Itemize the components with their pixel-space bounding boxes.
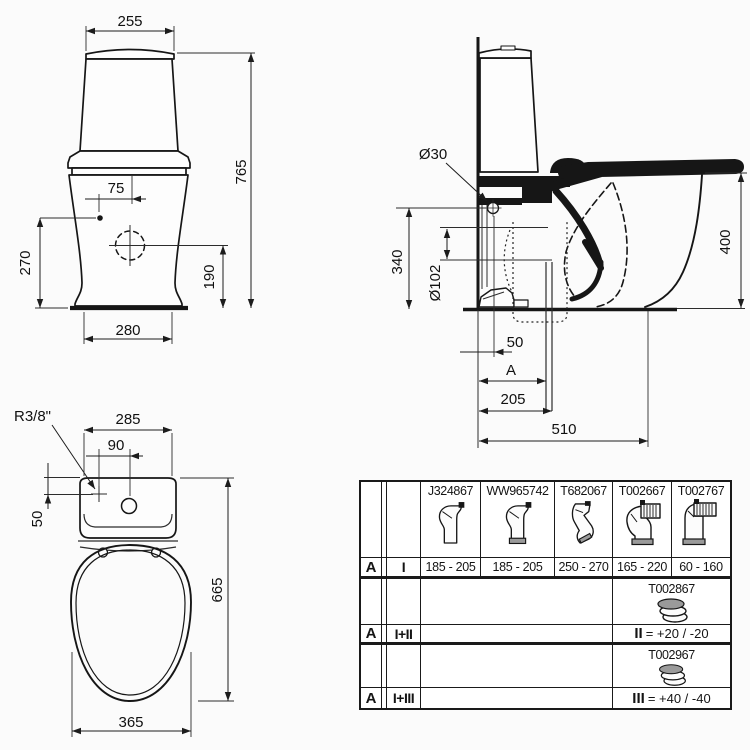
table-cell-empty [421, 625, 613, 643]
table-cell-empty [387, 482, 421, 558]
part-number: T002767 [678, 484, 725, 498]
table-header-part: T002667 [613, 482, 672, 558]
dim-label: 270 [17, 250, 34, 275]
table-cell-zone: A [361, 558, 382, 577]
dim-side-variable-a: A [479, 362, 546, 381]
dim-top-inlet-thread: R3/8" [14, 408, 95, 489]
dim-label: 90 [108, 437, 125, 454]
part-number: T002967 [648, 648, 695, 662]
dim-label: 50 [507, 334, 524, 351]
dim-label: 280 [115, 322, 140, 339]
table-cell-empty [421, 688, 613, 708]
table-cell-range: 185 - 205 [421, 558, 481, 577]
table-cell-accessory: T002967 [613, 643, 730, 688]
table-cell-range: 165 - 220 [613, 558, 672, 577]
table-header-part: J324867 [421, 482, 481, 558]
dim-side-outlet-depth: 205 [479, 391, 552, 411]
dim-top-total-length: 665 [180, 478, 234, 701]
side-view-drawing: Ø30 340 Ø102 400 50 A 205 [389, 37, 747, 448]
dim-side-total-depth: 510 [479, 311, 648, 447]
dim-label: 340 [389, 249, 406, 274]
table-cell-empty [387, 643, 421, 688]
table-cell-formula: III = +40 / -40 [613, 688, 730, 708]
s-bend-connector-sleeve-icon [498, 499, 538, 547]
connector-spec-table: J324867 WW965742 T682067 T002667 [359, 480, 732, 710]
part-number: T002667 [619, 484, 666, 498]
formula-roman-numeral: II [634, 625, 642, 642]
top-view-drawing: R3/8" 285 90 50 665 365 [14, 408, 234, 737]
dim-front-width-top: 255 [86, 13, 174, 51]
table-cell-range: 185 - 205 [481, 558, 555, 577]
dim-top-tank-width: 285 [84, 411, 172, 476]
dim-side-rim-height: 400 [705, 173, 747, 308]
part-number: J324867 [428, 484, 473, 498]
dim-label: 75 [108, 180, 125, 197]
table-header-part: WW965742 [481, 482, 555, 558]
dim-label: 285 [115, 411, 140, 428]
table-cell-config: I+III [387, 688, 421, 708]
dim-label: 190 [201, 264, 218, 289]
table-header-part: T682067 [555, 482, 613, 558]
table-cell-config: I [387, 558, 421, 577]
table-cell-empty [361, 643, 382, 688]
offset-coupler-icon [654, 597, 690, 624]
dim-side-wall-gap: 50 [460, 216, 523, 448]
table-cell-empty [421, 577, 613, 625]
table-cell-empty [387, 577, 421, 625]
dim-label: Ø102 [427, 265, 444, 302]
dim-label: 510 [551, 421, 576, 438]
table-cell-zone: A [361, 625, 382, 643]
table-cell-zone: A [361, 688, 382, 708]
table-cell-empty [421, 643, 613, 688]
offset-coupler-icon [654, 663, 690, 687]
dim-front-base-width: 280 [84, 312, 172, 344]
dim-label: 205 [500, 391, 525, 408]
part-number: T002867 [648, 582, 695, 596]
dim-label: R3/8" [14, 408, 51, 425]
supply-hole-dot [97, 215, 103, 221]
tank-lid-hole [122, 499, 137, 514]
formula-value: = +40 / -40 [648, 691, 711, 706]
formula-roman-numeral: III [632, 690, 645, 707]
dim-label: 365 [118, 714, 143, 731]
table-cell-formula: II = +20 / -20 [613, 625, 730, 643]
angled-connector-icon [564, 499, 604, 547]
seat-cover-profile [558, 159, 744, 179]
front-view-drawing: 255 765 75 270 190 280 [17, 13, 255, 344]
elbow-connector-icon [680, 499, 722, 547]
table-cell-config: I+II [387, 625, 421, 643]
table-cell-empty [361, 577, 382, 625]
table-cell-accessory: T002867 [613, 577, 730, 625]
table-header-part: T002767 [672, 482, 730, 558]
dim-side-outlet-dia: Ø102 [427, 229, 447, 301]
part-number: WW965742 [486, 484, 548, 498]
table-cell-range: 60 - 160 [672, 558, 730, 577]
flexible-elbow-connector-icon [621, 499, 663, 547]
formula-value: = +20 / -20 [646, 626, 709, 641]
dim-label: 765 [233, 159, 250, 184]
dim-label: 255 [117, 13, 142, 30]
technical-drawing-page: { "drawing": { "front": { "dim_width_top… [0, 0, 750, 750]
dim-label: A [506, 362, 516, 379]
table-cell-range: 250 - 270 [555, 558, 613, 577]
part-number: T682067 [560, 484, 607, 498]
dim-label: 50 [29, 511, 46, 528]
s-bend-connector-icon [431, 499, 471, 547]
table-cell-empty [361, 482, 382, 558]
dim-label: 665 [209, 577, 226, 602]
dim-label: Ø30 [419, 146, 447, 163]
dim-label: 400 [717, 229, 734, 254]
